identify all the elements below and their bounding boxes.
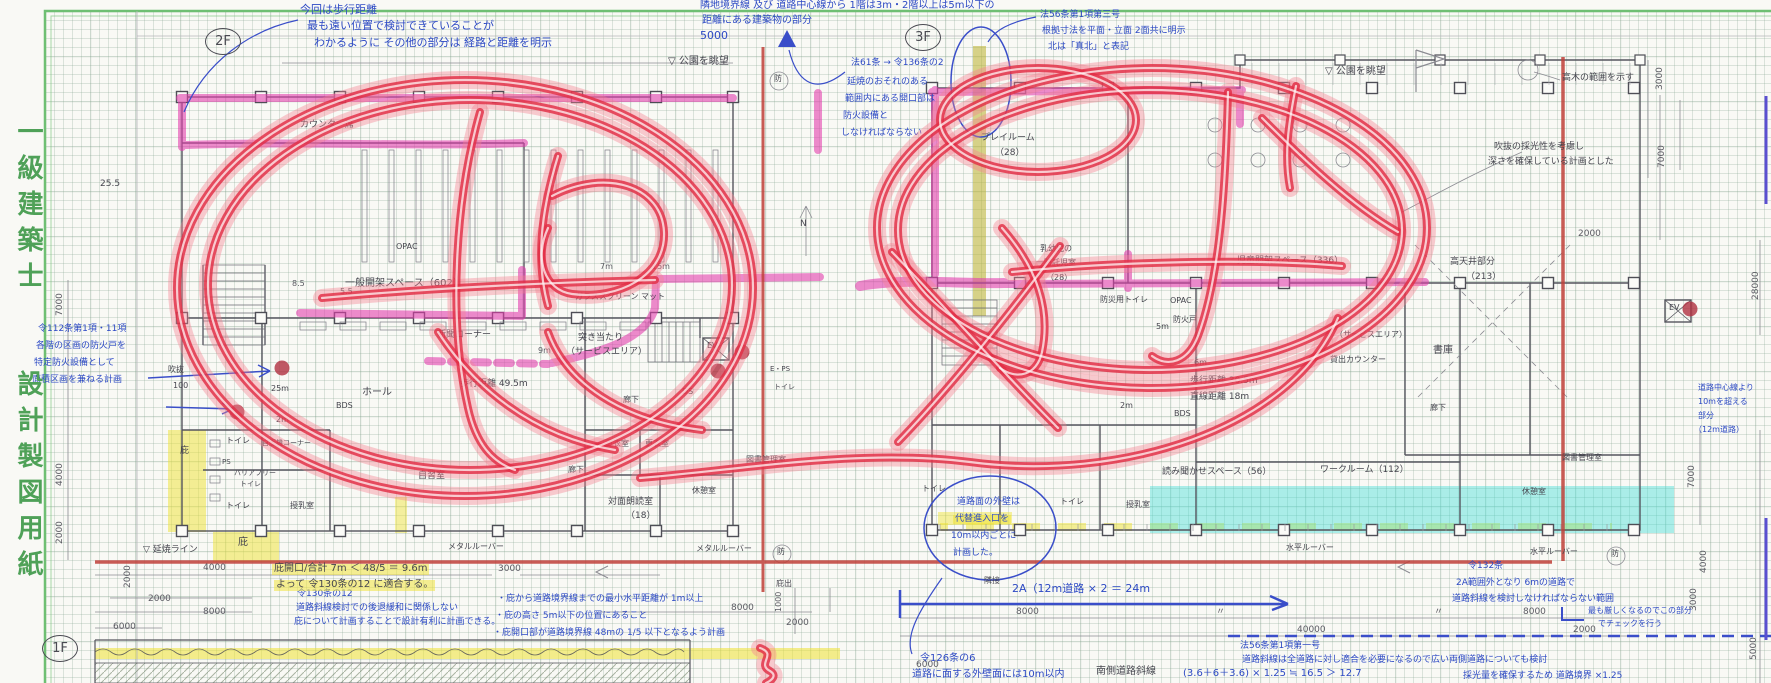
plan-label: 児童開架スペース（336）: [1237, 257, 1343, 266]
plan-label: N: [800, 220, 807, 229]
handwritten-note: 法56条第1項第三号: [1040, 11, 1120, 20]
plan-label: トイレ: [1060, 498, 1084, 506]
plan-label: 庇開口/合計 7m ＜ 48/5 ＝ 9.6m: [272, 564, 429, 575]
plan-label: 高木の範囲を示す: [1562, 74, 1634, 83]
handwritten-note: 2A範囲外となり 6mの道路で: [1456, 579, 1575, 588]
dimension-label: 9m: [538, 347, 551, 355]
handwritten-note: 道路に面する外壁面には10m以内: [912, 670, 1064, 681]
plan-label: 読み聞かせスペース（56）: [1162, 468, 1271, 477]
plan-label: 更衣室: [605, 440, 629, 448]
plan-label: （213）: [1466, 273, 1501, 282]
plan-label: 100: [173, 382, 188, 390]
plan-label: （18）: [626, 512, 655, 521]
plan-label: 自習室: [418, 472, 445, 481]
plan-label: 対面朗読室: [608, 498, 653, 507]
dimension-label: 2000: [786, 619, 809, 628]
plan-label: ホール: [362, 388, 392, 399]
handwritten-note: 道路面の外壁は: [957, 498, 1020, 507]
dimension-label: 28000: [1752, 271, 1761, 300]
handwritten-note: ・庇から道路境界線までの最小水平距離が 1m以上: [497, 595, 703, 604]
plan-label: 書庫: [1433, 346, 1453, 357]
dimension-label: 40000: [1297, 626, 1326, 635]
dimension-label: 3000: [1656, 67, 1665, 90]
plan-label: 休憩室: [1522, 488, 1546, 496]
handwritten-note: 計画した。: [953, 549, 998, 558]
handwritten-note: 採光量を確保するため 道路境界 ×1.25: [1463, 672, 1622, 681]
plan-label: ワークルーム（112）: [1320, 466, 1409, 475]
handwritten-note: 令132条: [1468, 562, 1503, 571]
plan-label: トイレ: [226, 437, 250, 445]
handwritten-note: わかるように その他の部分は 経路と距離を明示: [314, 37, 552, 49]
plan-label: 歩行距離 49.5m: [460, 380, 528, 389]
plan-label: 水平ルーバー: [1286, 544, 1334, 552]
plan-label: E・PS: [770, 366, 790, 373]
handwritten-note: 今回は歩行距離: [300, 4, 377, 16]
dimension-label: 5.5: [340, 288, 353, 296]
plan-label: 2m: [1120, 402, 1133, 410]
plan-label: 貸出カウンター: [1330, 356, 1386, 364]
plan-label: OPAC: [1170, 297, 1192, 305]
handwritten-note: 隣地境界線 及び 道路中心線から 1階は3m・2階以上は5m以下の: [700, 1, 994, 12]
plan-label: 深さを確保している計画とした: [1488, 158, 1614, 167]
plan-label: 授乳室: [290, 502, 314, 510]
dimension-label: 〃: [1216, 608, 1225, 617]
plan-label: 廊下: [623, 396, 639, 404]
handwritten-note: ・庇開口部が道路境界線 48mの 1/5 以下となるよう計画: [493, 629, 725, 638]
plan-label: ▽ 公園を眺望: [1325, 67, 1386, 78]
handwritten-note: 10m以内ごとに: [951, 532, 1016, 541]
plan-label: 吹抜: [168, 366, 184, 374]
dimension-label: 2000: [1573, 626, 1596, 635]
plan-label: 乳幼児の: [1040, 245, 1072, 253]
plan-label: 6m: [1194, 359, 1207, 367]
handwritten-note: 令112条第1項・11項: [38, 325, 126, 334]
plan-label: 廊下: [568, 466, 584, 474]
dimension-label: 4000: [203, 564, 226, 573]
plan-label: トイレ: [922, 485, 946, 493]
dimension-label: 4000: [1700, 550, 1709, 573]
dimension-label: 8000: [1523, 608, 1546, 617]
dimension-label: 〃: [1434, 608, 1443, 617]
plan-label: 2m: [276, 416, 289, 424]
handwritten-note: 庇について計画することで設計有利に計画できる。: [294, 618, 500, 627]
handwritten-note: 最も遠い位置で検討できていることが: [307, 20, 494, 32]
plan-label: 新聞コーナー: [437, 331, 491, 340]
handwritten-note: でチェックを行う: [1598, 620, 1662, 628]
plan-label: BDS: [1174, 410, 1191, 418]
handwritten-note: 延焼のおそれのある: [847, 78, 928, 87]
plan-label: 防災用トイレ: [1100, 296, 1148, 304]
floor-label-3f: 3F: [905, 24, 941, 51]
dimension-label: 15m: [652, 263, 670, 271]
plan-label: 防: [774, 75, 782, 83]
plan-label: トイレ: [240, 481, 261, 488]
handwritten-note: 令130条の12: [297, 590, 353, 599]
handwritten-note: (3.6＋6＋3.6) × 1.25 ≒ 16.5 ＞ 12.7: [1183, 669, 1362, 680]
dimension-label: 7m: [600, 263, 613, 271]
handwritten-note: 法56条第1項第一号: [1240, 642, 1320, 651]
floor-label-1f: 1F: [42, 635, 78, 662]
plan-label: 25m: [271, 385, 289, 393]
handwritten-note: 2A（12m道路 × 2 ＝ 24m: [1012, 583, 1150, 595]
handwritten-annotations: 今回は歩行距離最も遠い位置で検討できていることがわかるように その他の部分は 経…: [0, 0, 1771, 683]
dimension-label: 7000: [1658, 145, 1667, 168]
handwritten-note: 道路中心線より: [1698, 384, 1754, 392]
dimension-label: 8000: [1016, 608, 1039, 617]
plan-label: （サービスエリア）: [566, 348, 647, 357]
plan-label: 廊下: [1430, 404, 1446, 412]
plan-label: トイレ: [226, 502, 250, 510]
dimension-label: 6000: [916, 661, 939, 670]
plan-label: 更衣室: [645, 440, 669, 448]
plan-label: 授乳室: [1126, 501, 1150, 509]
plan-label: EV: [707, 342, 718, 350]
dimension-label: 3000: [498, 565, 521, 574]
dimension-label: 2000: [1578, 230, 1601, 239]
plan-label: 図書管理室: [746, 456, 786, 464]
handwritten-note: 最も厳しくなるのでこの部分: [1588, 607, 1692, 615]
plan-label: 図書管理室: [1562, 454, 1602, 462]
handwritten-note: ・庇の高さ 5m以下の位置にあること: [495, 612, 647, 621]
plan-label: DS: [682, 388, 693, 396]
plan-label: メタルルーバー: [696, 545, 752, 553]
plan-label: 庇出: [776, 580, 792, 588]
dimension-label: 8000: [731, 604, 754, 613]
plan-label: トイレ: [774, 384, 795, 391]
plan-label: 一般開架スペース（602）: [345, 279, 463, 290]
plan-label: カウンター席: [300, 121, 354, 130]
dimension-label: 2000: [56, 521, 65, 544]
dimension-label: 5000: [1750, 637, 1759, 660]
plan-label: 庇: [238, 538, 248, 549]
handwritten-note: 代替進入口を: [953, 515, 1011, 524]
dimension-label: 2000: [124, 565, 133, 588]
plan-label: 高天井部分: [1450, 258, 1495, 267]
sheet-margin-title: 一級建築士 設計製図用紙: [10, 118, 47, 678]
handwritten-note: 各階の区画の防火戸を: [36, 342, 126, 351]
handwritten-note: 道路斜線検討での後退緩和に関係しない: [296, 604, 458, 613]
plan-label: メタルルーバー: [448, 543, 504, 551]
plan-label: BDS: [336, 402, 353, 410]
plan-label: （28）: [1046, 274, 1072, 282]
plan-label: PS: [222, 459, 231, 466]
plan-label: 一時託児室: [1036, 259, 1076, 267]
dimension-label: 8000: [203, 608, 226, 617]
plan-label: プレイルーム: [981, 134, 1035, 143]
plan-label: 吹抜の採光性を考慮し: [1494, 143, 1584, 152]
plan-label: 休憩室: [692, 487, 716, 495]
dimension-label: 8.5: [292, 280, 305, 288]
handwritten-note: 10mを超える: [1698, 398, 1748, 406]
handwritten-note: 北は「真北」と表記: [1048, 43, 1129, 52]
plan-label: （28）: [995, 149, 1024, 158]
drafting-sheet: 今回は歩行距離最も遠い位置で検討できていることがわかるように その他の部分は 経…: [0, 0, 1771, 683]
dimension-label: 1000: [775, 592, 783, 612]
plan-label: 防: [1611, 550, 1619, 558]
plan-label: ▽ 延焼ライン: [143, 546, 198, 555]
handwritten-note: 距離にある建築物の部分: [702, 16, 812, 27]
plan-label: よって 令130条の12 に適合する。: [274, 580, 435, 591]
plan-label: OPAC: [396, 243, 418, 251]
handwritten-note: 道路斜線は全道路に対し適合を必要になるので広い両側道路についても検討: [1242, 656, 1547, 665]
plan-label: バリアフリー: [234, 470, 276, 477]
handwritten-note: 防火設備と: [843, 112, 888, 121]
handwritten-note: 5000: [700, 30, 728, 42]
handwritten-note: 根拠寸法を平面・立面 2面共に明示: [1042, 27, 1186, 36]
plan-label: 突き当たり: [578, 334, 623, 343]
dimension-label: 4000: [56, 463, 65, 486]
plan-label: 25.5: [100, 180, 120, 189]
handwritten-note: しなければならない: [841, 129, 922, 138]
dimension-label: 7000: [56, 293, 65, 316]
handwritten-note: 令126条の6: [920, 654, 975, 665]
floor-label-2f: 2F: [205, 28, 241, 55]
plan-label: 水平ルーバー: [1530, 548, 1578, 556]
handwritten-note: （12m道路）: [1694, 426, 1744, 434]
plan-label: 防: [777, 548, 785, 556]
plan-label: 歩行距離 30.5m: [1190, 377, 1258, 386]
plan-label: 5m: [1156, 323, 1169, 331]
plan-label: ガラススクリーン マット: [575, 293, 665, 301]
plan-label: 隣接: [984, 577, 1000, 585]
handwritten-note: 道路斜線を検討しなければならない範囲: [1452, 595, 1614, 604]
plan-label: ▽ 公園を眺望: [668, 57, 729, 68]
plan-label: 南側道路斜線: [1096, 667, 1156, 678]
handwritten-note: 法61条 → 令136条の2: [851, 59, 944, 68]
handwritten-note: 範囲内にある開口部は: [845, 95, 935, 104]
plan-label: 自販機コーナー: [262, 440, 311, 447]
dimension-label: 3000: [1690, 588, 1699, 611]
dimension-label: 2000: [148, 595, 171, 604]
plan-label: 直線距離 18m: [1190, 393, 1249, 402]
handwritten-note: 部分: [1698, 412, 1714, 420]
plan-label: （サービスエリア）: [1335, 331, 1407, 339]
dimension-label: 6000: [113, 623, 136, 632]
dimension-label: 7000: [1688, 465, 1697, 488]
plan-label: 庇: [180, 447, 189, 456]
plan-label: 防火戸: [1173, 316, 1197, 324]
plan-label: EV: [1669, 304, 1680, 312]
